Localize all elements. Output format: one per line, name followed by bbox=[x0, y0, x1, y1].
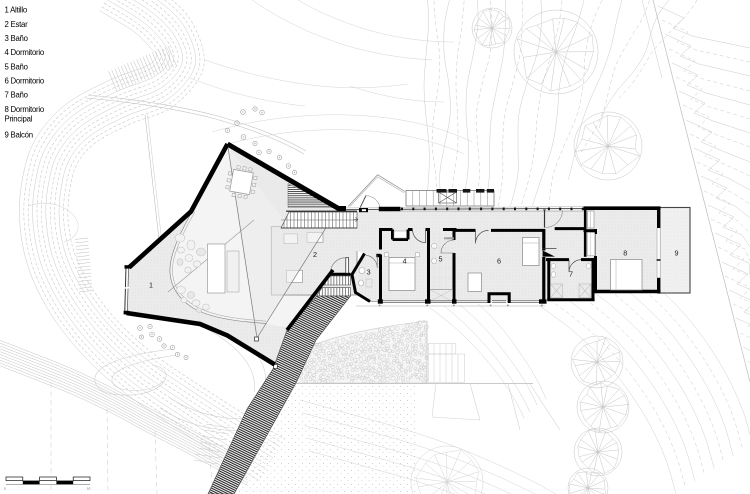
svg-text:8 Dormitorio: 8 Dormitorio bbox=[5, 105, 45, 114]
svg-text:9: 9 bbox=[675, 249, 679, 258]
svg-text:2 Estar: 2 Estar bbox=[5, 20, 29, 29]
svg-text:3: 3 bbox=[367, 267, 371, 276]
svg-text:Principal: Principal bbox=[5, 114, 33, 123]
svg-text:7: 7 bbox=[569, 270, 573, 279]
svg-text:8: 8 bbox=[623, 249, 627, 258]
svg-text:6 Dormitorio: 6 Dormitorio bbox=[5, 76, 45, 85]
svg-text:2: 2 bbox=[313, 250, 317, 259]
svg-text:10: 10 bbox=[87, 487, 91, 491]
svg-text:1: 1 bbox=[149, 281, 153, 290]
svg-text:5 Baño: 5 Baño bbox=[5, 62, 29, 71]
svg-text:6: 6 bbox=[497, 256, 501, 265]
svg-text:4 Dormitorio: 4 Dormitorio bbox=[5, 48, 45, 57]
svg-text:7 Baño: 7 Baño bbox=[5, 91, 29, 100]
svg-text:4: 4 bbox=[403, 256, 407, 265]
svg-text:3 Baño: 3 Baño bbox=[5, 34, 29, 43]
svg-text:1 Altillo: 1 Altillo bbox=[5, 6, 28, 15]
svg-text:5: 5 bbox=[439, 255, 443, 264]
svg-text:9 Balcón: 9 Balcón bbox=[5, 130, 33, 139]
